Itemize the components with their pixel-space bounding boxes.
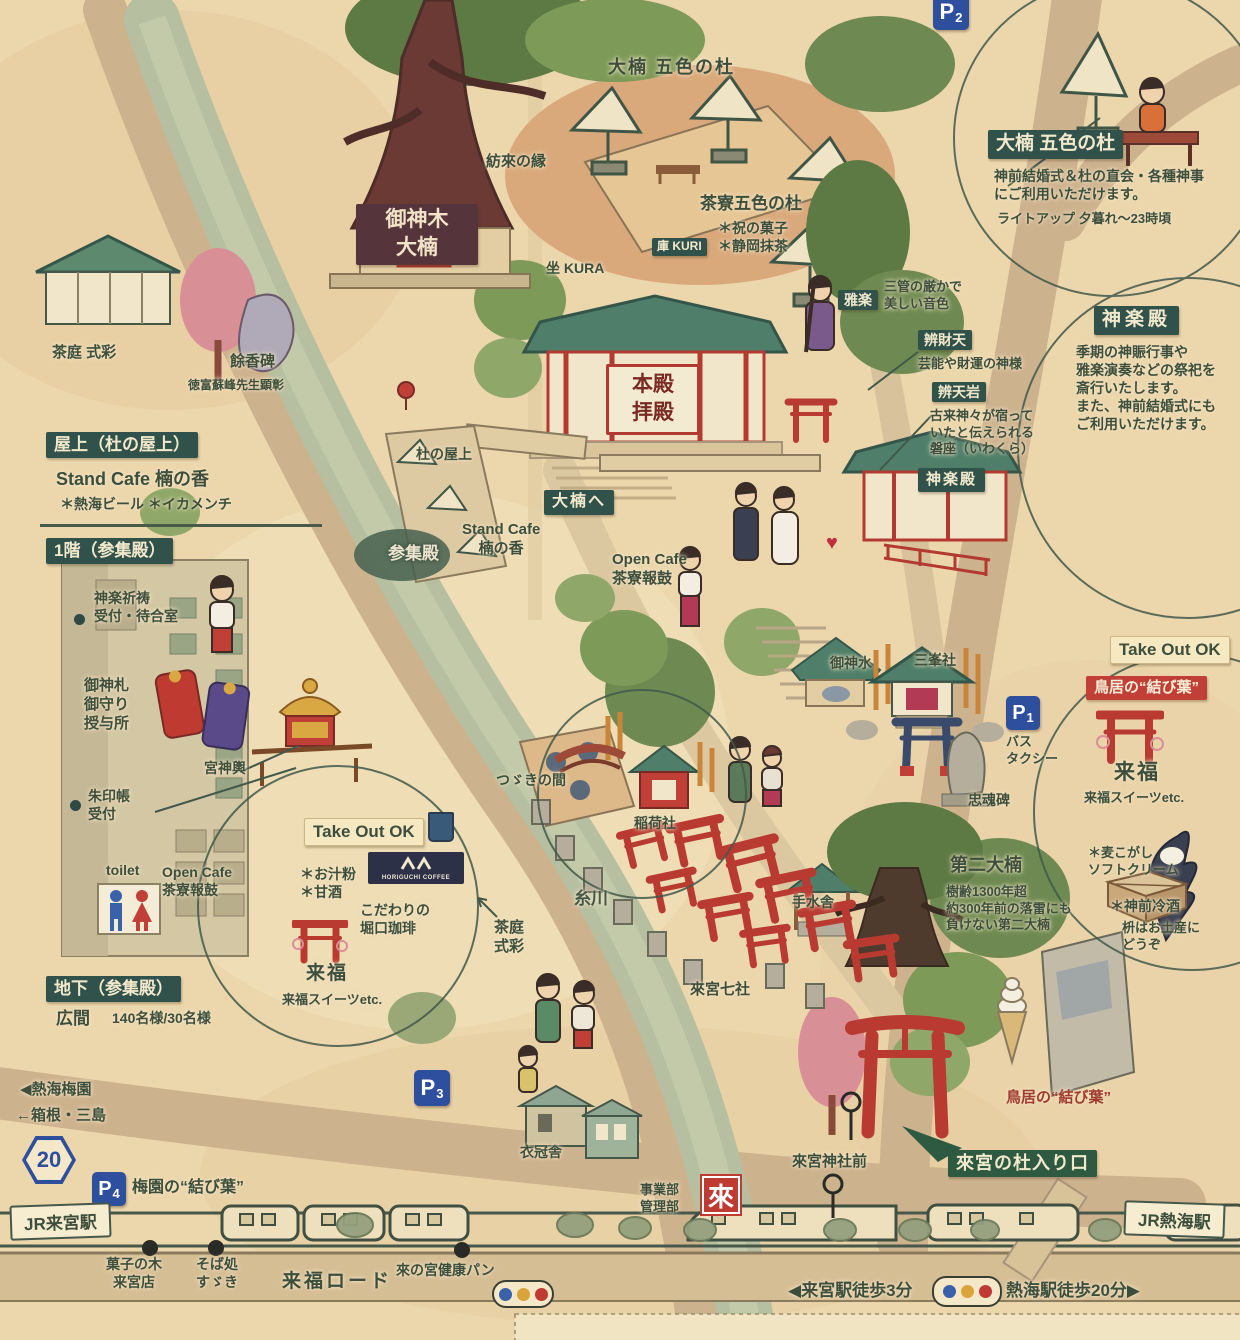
standcafe-map-label: Stand Cafe 楠の香 [462, 520, 540, 558]
coffee-logo-mark [396, 855, 436, 873]
visitor-woman [762, 746, 782, 806]
kura-label: 坐 KURA [546, 260, 604, 278]
parking-p3-badge: P3 [414, 1070, 450, 1106]
parking-p1-badge: P1 [1006, 696, 1040, 730]
bride [772, 487, 798, 564]
daini-okusu-note: 樹齢1300年超 約300年前の落雷にも 負けない第二大楠 [946, 884, 1072, 934]
hakone-mishima-label: ←箱根・三島 [16, 1106, 106, 1125]
traffic-light-icon-right [932, 1276, 1002, 1307]
torii-musubiba-bottom-label: 鳥居の“結び葉” [1006, 1088, 1111, 1107]
family-mom [572, 981, 594, 1048]
coffee-cup-icon [428, 812, 454, 842]
daini-okusu-label: 第二大楠 [950, 854, 1022, 877]
benzaiten-note: 芸能や財運の神様 [918, 356, 1022, 373]
kito-bullet [74, 614, 85, 625]
kinomiya-shrine-map: P2 大楠 五色の杜 神前結婚式＆杜の直会・各種神事 にご利用いただけます。 ラ… [0, 0, 1240, 1340]
standcafe-left-items: ＊熱海ビール ＊イカメンチ [60, 496, 232, 514]
raifuku-left-label: 来福 [306, 962, 348, 986]
horiguchi-logo: HORIGUCHI COFFEE [368, 852, 464, 884]
benzaiten-label: 辨財天 [918, 330, 972, 350]
raifuku-left-note: 来福スイーツetc. [282, 992, 382, 1009]
standcafe-left-label: Stand Cafe 楠の香 [56, 468, 209, 491]
jinja-mae-busstop-label: 來宮神社前 [792, 1152, 867, 1171]
okusu-e-label: 大楠へ [544, 490, 614, 515]
jigyobu-label: 事業部 管理部 [640, 1182, 679, 1215]
saryo-goshiki-label: 茶寮五色の杜 [700, 193, 802, 215]
family-dad [536, 974, 560, 1042]
okujo-title: 屋上（杜の屋上） [46, 432, 198, 458]
osatsu-label: 御神札 御守り 授与所 [84, 676, 129, 734]
shuin-bullet [70, 800, 81, 811]
traffic-light-icon-left [492, 1280, 554, 1308]
shuin-label: 朱印帳 受付 [88, 788, 130, 824]
ikkai-title: 1階（参集殿） [46, 538, 173, 564]
kenko-pan-label: 來の宮健康パン [396, 1262, 495, 1280]
chatei-center-label: 茶庭 式彩 [494, 918, 524, 956]
chozuya-label: 手水舎 [792, 894, 834, 912]
okusu-area-label: 大楠 五色の杜 [608, 56, 735, 79]
raifuku-torii-right-icon [1096, 706, 1164, 764]
okusu-info-body: 神前結婚式＆杜の直会・各種神事 にご利用いただけます。 [994, 168, 1204, 204]
walk-atami-label: 熱海駅徒歩20分▶ [1006, 1280, 1140, 1302]
parking-p2-badge: P2 [933, 0, 969, 30]
chika-title: 地下（参集殿） [46, 976, 181, 1002]
benteniwa-label: 辨天岩 [932, 382, 986, 402]
mitsumine-label: 三峯社 [914, 652, 956, 670]
masu-note: 枡はお土産に どうぞ [1122, 920, 1200, 953]
restroom-icon [98, 884, 160, 934]
oshiruko-label: ＊お汁粉 ＊甘酒 [300, 866, 356, 902]
kito-label: 神楽祈祷 受付・待合室 [94, 590, 178, 626]
divider [40, 524, 322, 527]
okusu-info-note: ライトアップ 夕暮れ〜23時頃 [997, 211, 1171, 228]
gagaku-label: 雅楽 [838, 290, 878, 310]
raifuku-right-label: 来福 [1114, 760, 1160, 787]
mikoshi-label: 宮神輿 [204, 760, 246, 778]
groom [734, 483, 758, 560]
walk-kinomiya-label: ◀来宮駅徒歩3分 [788, 1280, 913, 1302]
kuri-label: 庫 KURI [652, 238, 707, 256]
kaguraden-map-label: 神楽殿 [918, 468, 985, 492]
route-20-number: 20 [37, 1147, 61, 1173]
heart-icon: ♥ [826, 532, 838, 555]
inari-label: 稲荷社 [634, 815, 676, 833]
panel-edge [515, 1314, 1240, 1340]
tsumugi-label: 紡來の縁 [486, 152, 546, 171]
torii-musubiba-plaque: 鳥居の“結び葉” [1086, 676, 1207, 700]
raifuku-torii-left-icon [292, 916, 348, 964]
yokouhi-note: 徳富蘇峰先生顕彰 [188, 378, 284, 393]
benteniwa-note: 古来神々が宿って いたと伝えられる 磐座（いわくら） [930, 408, 1034, 458]
jr-atami-station: JR熱海駅 [1123, 1200, 1225, 1238]
p1-sub-label: バス タクシー [1006, 734, 1058, 767]
gagaku-musician [806, 276, 834, 352]
parking-p3-letter: P [421, 1075, 436, 1101]
visitor-man [729, 737, 751, 802]
miko-left [210, 576, 234, 652]
hiroma-capacity: 140名様/30名様 [112, 1010, 211, 1028]
mugikogashi-label: ＊麦こがし ソフトクリーム [1088, 845, 1179, 878]
opencafe-left-label: Open Cafe 茶寮報鼓 [162, 864, 232, 900]
reishu-label: ＊神前冷酒 [1110, 898, 1180, 916]
chatei-tl-label: 茶庭 式彩 [52, 343, 116, 362]
ikansha-label: 衣冠舎 [520, 1144, 562, 1162]
soba-suzuki-label: そば処 すゞき [196, 1256, 238, 1292]
mori-okujo-label: 杜の屋上 [416, 446, 472, 464]
toilet-label: toilet [106, 862, 139, 880]
horiguchi-note: こだわりの 堀口珈琲 [360, 902, 430, 938]
gagaku-note: 三管の厳かで 美しい音色 [884, 279, 962, 312]
mori-entrance-plaque: 來宮の杜入り口 [948, 1150, 1097, 1177]
jr-kinomiya-station: JR来宮駅 [9, 1202, 111, 1240]
chukonhi-label: 忠魂碑 [968, 792, 1010, 810]
sanshuden-map-label: 参集殿 [388, 543, 439, 565]
hiroma-label: 広間 [56, 1008, 90, 1030]
parking-p2-number: 2 [955, 10, 962, 25]
p4-note: 梅園の“結び葉” [132, 1178, 244, 1198]
rai-crest-logo: 來 [702, 1176, 740, 1214]
coffee-logo-text: HORIGUCHI COFFEE [374, 875, 458, 881]
kashinoki-label: 菓子の木 来宮店 [106, 1256, 162, 1292]
parking-p4-letter: P [98, 1178, 111, 1201]
raifuku-right-note: 来福スイーツetc. [1084, 790, 1184, 807]
kagura-info-body: 季期の神賑行事や 雅楽演奏などの祭祀を 斎行いたします。 また、神前結婚式にも … [1076, 344, 1216, 434]
kagura-info-title: 神楽殿 [1094, 306, 1179, 335]
parking-p1-letter: P [1012, 702, 1025, 725]
parking-p4-badge: P4 [92, 1172, 126, 1206]
parking-p2-letter: P [940, 0, 955, 25]
parking-p3-number: 3 [436, 1086, 443, 1101]
saryo-goshiki-items: ＊祝の菓子 ＊静岡抹茶 [718, 220, 788, 256]
yokouhi-label: 餘香碑 [230, 352, 275, 371]
opencafe-map-label: Open Cafe 茶寮報鼓 [612, 550, 687, 588]
raifuku-road-label: 来福ロード [282, 1270, 392, 1294]
goshinboku-plaque: 御神木 大楠 [356, 204, 478, 265]
goshinsui-label: 御神水 [830, 655, 872, 673]
parking-p1-number: 1 [1027, 710, 1034, 725]
tsuzuki-label: つゞきの間 [496, 772, 566, 790]
takeout-right-badge: Take Out OK [1110, 636, 1230, 664]
itogawa-label: 糸川 [574, 888, 608, 910]
parking-p4-number: 4 [113, 1186, 120, 1201]
takeout-left-badge: Take Out OK [304, 818, 424, 846]
family-kid [519, 1046, 537, 1092]
nanasha-label: 來宮七社 [690, 980, 750, 999]
honden-plaque: 本殿 拝殿 [606, 364, 700, 435]
atami-baien-label: ◀熱海梅園 [20, 1080, 92, 1099]
okusu-info-title: 大楠 五色の杜 [988, 130, 1123, 159]
